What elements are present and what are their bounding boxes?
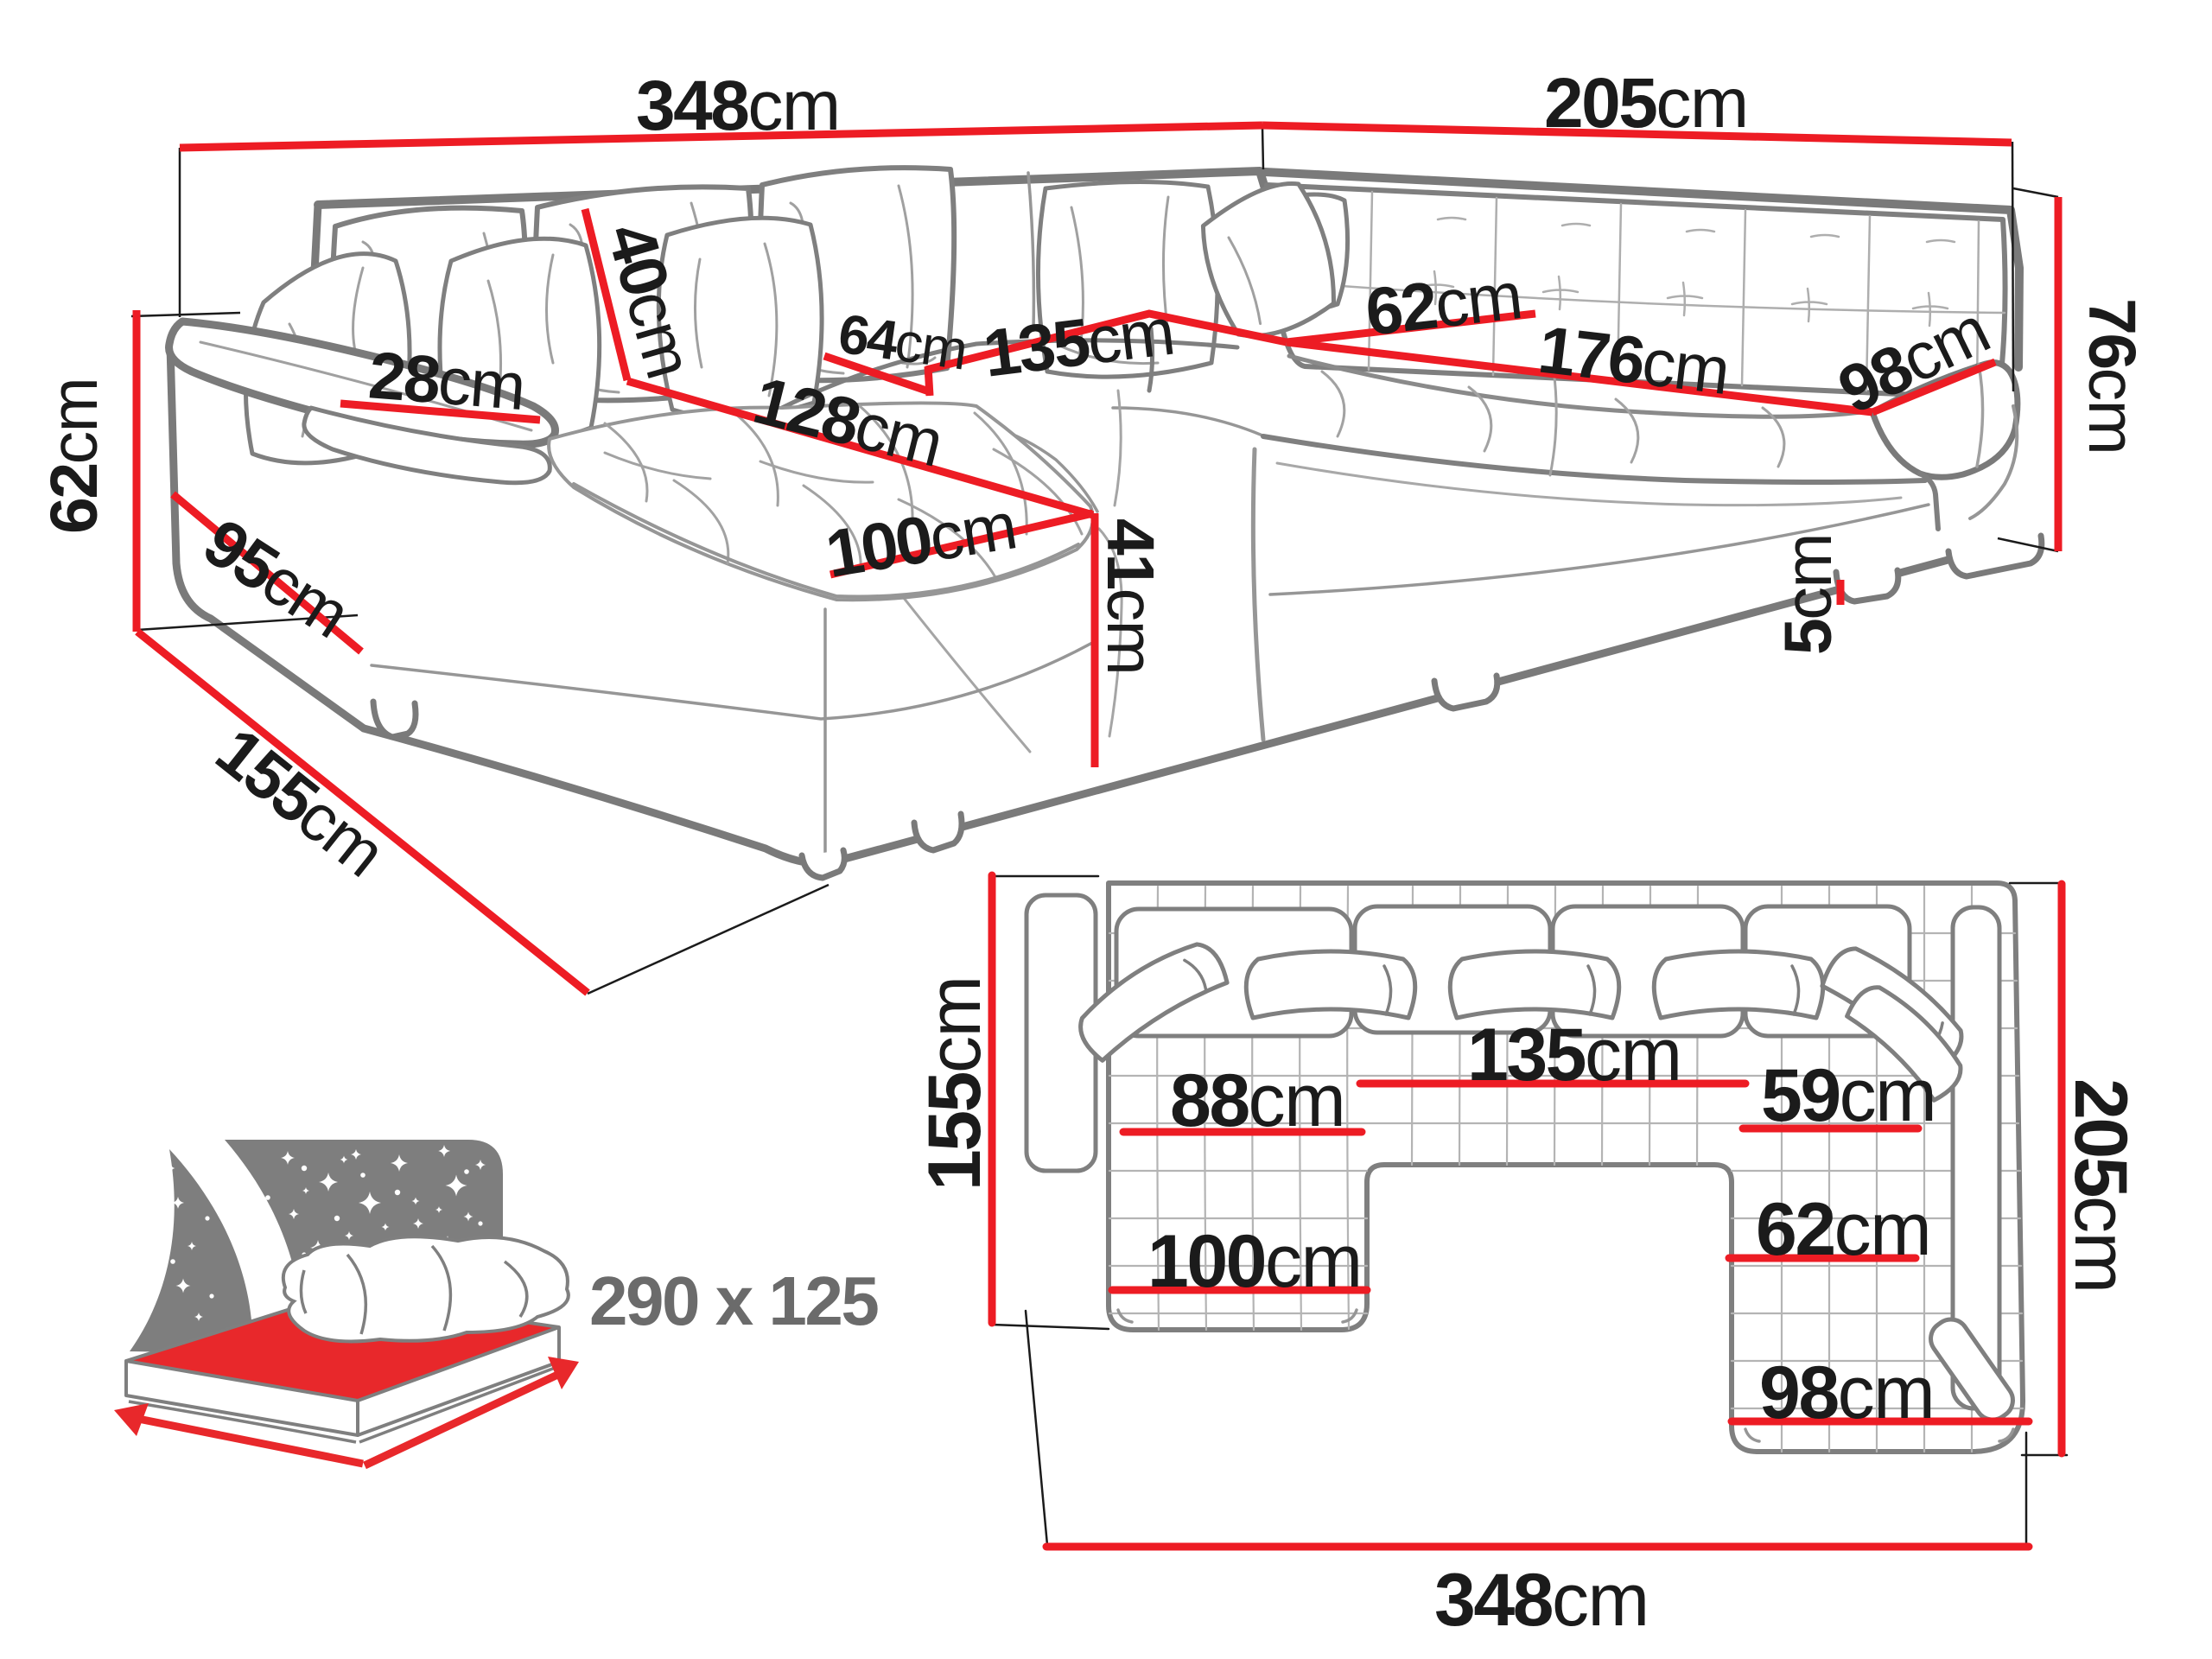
svg-text:88cm: 88cm (1170, 1059, 1344, 1142)
svg-text:41cm: 41cm (1093, 518, 1167, 674)
svg-text:62cm: 62cm (37, 378, 111, 534)
svg-text:290 x 125: 290 x 125 (589, 1262, 878, 1339)
svg-text:59cm: 59cm (1761, 1054, 1935, 1137)
svg-text:100cm: 100cm (1147, 1220, 1362, 1303)
svg-text:205cm: 205cm (2059, 1078, 2142, 1293)
svg-text:5cm: 5cm (1771, 534, 1846, 655)
svg-text:62cm: 62cm (1756, 1188, 1930, 1271)
svg-text:28cm: 28cm (366, 338, 528, 424)
svg-text:348cm: 348cm (1434, 1559, 1649, 1642)
svg-text:348cm: 348cm (636, 67, 840, 145)
svg-text:205cm: 205cm (1544, 64, 1748, 143)
svg-text:155cm: 155cm (913, 976, 996, 1191)
svg-text:98cm: 98cm (1759, 1351, 1934, 1434)
svg-text:135cm: 135cm (1467, 1014, 1681, 1096)
svg-text:76cm: 76cm (2075, 298, 2149, 454)
